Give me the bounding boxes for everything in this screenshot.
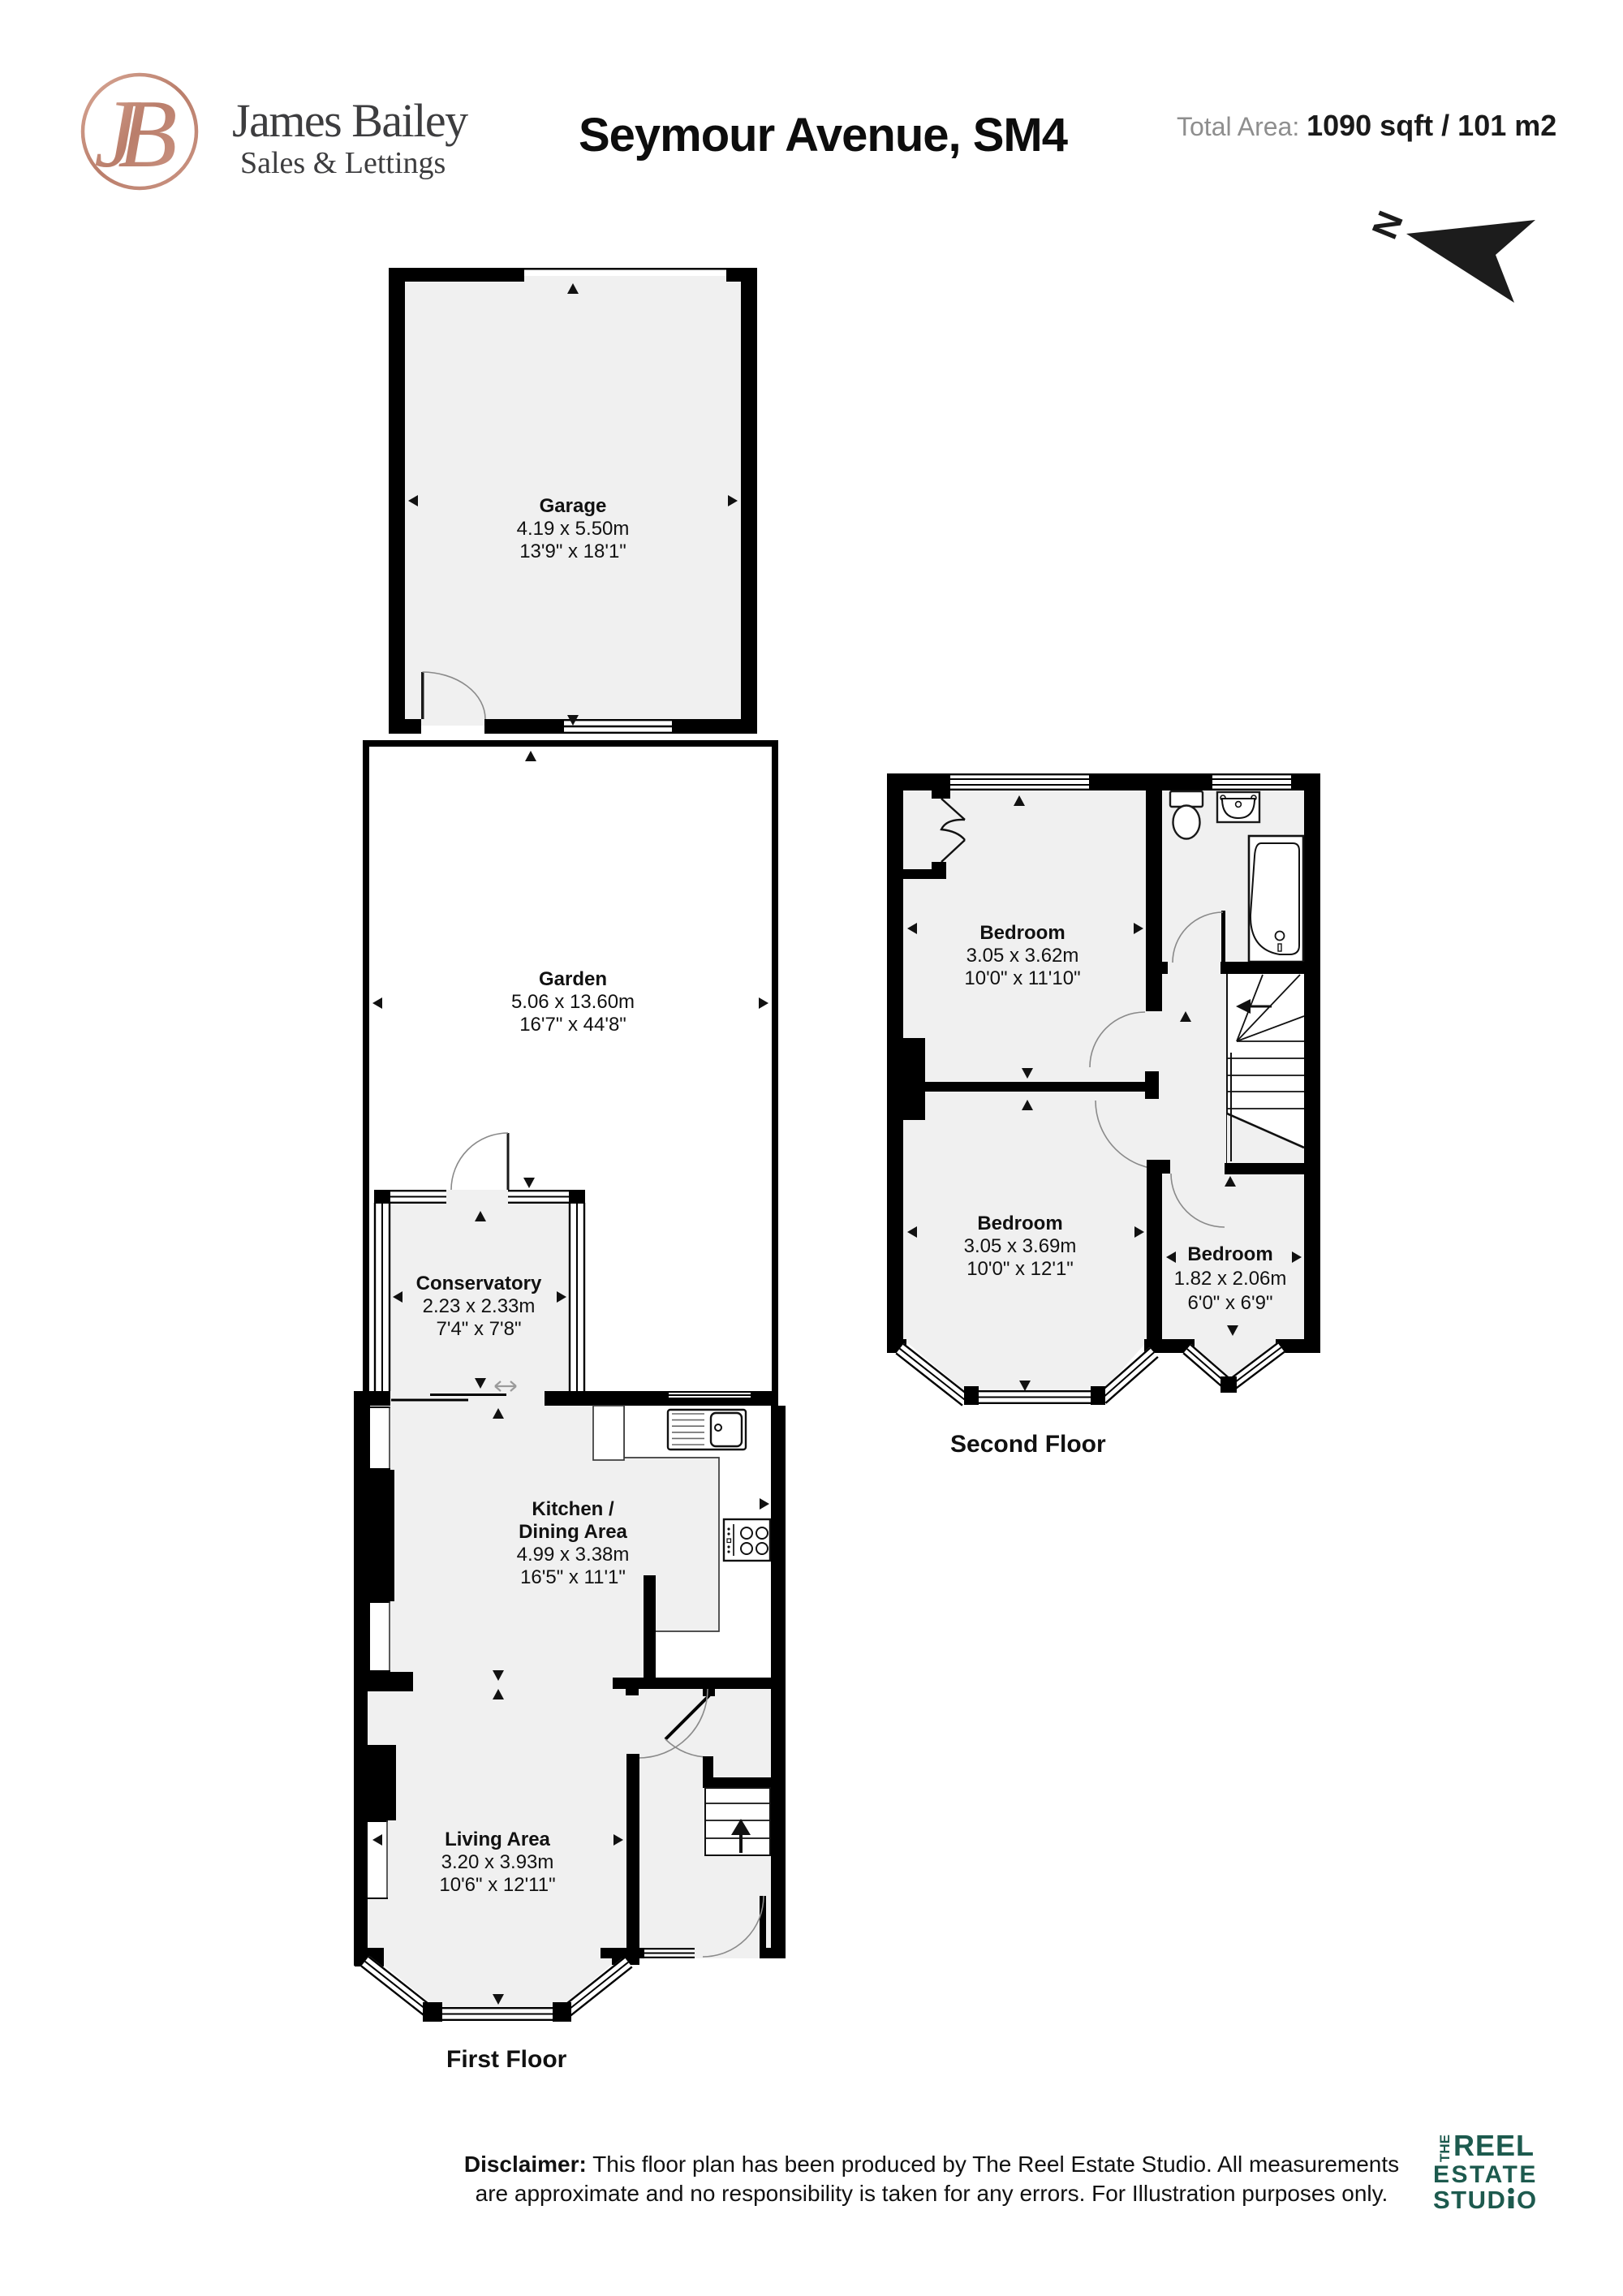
svg-text:10'0" x 12'1": 10'0" x 12'1": [966, 1258, 1074, 1280]
svg-text:ESTATE: ESTATE: [1433, 2161, 1538, 2188]
svg-text:16'5" x 11'1": 16'5" x 11'1": [520, 1566, 626, 1588]
svg-text:are approximate and no respons: are approximate and no responsibility is…: [476, 2181, 1388, 2206]
svg-text:Living Area: Living Area: [445, 1829, 550, 1850]
svg-text:Garage: Garage: [540, 495, 607, 517]
svg-text:REEL: REEL: [1453, 2129, 1535, 2162]
svg-text:Disclaimer: This floor plan ha: Disclaimer: This floor plan has been pro…: [464, 2152, 1399, 2177]
svg-text:1.82 x 2.06m: 1.82 x 2.06m: [1174, 1268, 1287, 1290]
svg-text:Bedroom: Bedroom: [977, 1213, 1062, 1234]
svg-text:Total Area: 1090 sqft / 101 m: Total Area: 1090 sqft / 101 m2: [1177, 109, 1556, 142]
svg-text:3.05 x 3.62m: 3.05 x 3.62m: [966, 945, 1079, 967]
svg-text:O: O: [1517, 2186, 1536, 2214]
svg-text:10'6" x 12'11": 10'6" x 12'11": [439, 1874, 555, 1896]
svg-text:Dining Area: Dining Area: [519, 1521, 627, 1543]
svg-text:Second Floor: Second Floor: [950, 1431, 1106, 1458]
svg-text:2.23 x 2.33m: 2.23 x 2.33m: [423, 1295, 536, 1317]
svg-text:4.19 x 5.50m: 4.19 x 5.50m: [517, 518, 630, 540]
svg-text:First Floor: First Floor: [446, 2046, 567, 2073]
svg-text:Conservatory: Conservatory: [416, 1273, 542, 1294]
svg-text:Bedroom: Bedroom: [1187, 1243, 1272, 1265]
svg-text:Kitchen /: Kitchen /: [532, 1498, 614, 1520]
svg-text:3.20 x 3.93m: 3.20 x 3.93m: [441, 1851, 554, 1873]
svg-text:10'0" x 11'10": 10'0" x 11'10": [964, 967, 1080, 989]
svg-text:13'9" x 18'1": 13'9" x 18'1": [519, 541, 626, 562]
svg-text:Bedroom: Bedroom: [979, 922, 1065, 944]
svg-text:THE: THE: [1437, 2134, 1453, 2162]
svg-text:Garden: Garden: [539, 968, 607, 990]
svg-text:4.99 x 3.38m: 4.99 x 3.38m: [517, 1544, 630, 1566]
svg-text:3.05 x 3.69m: 3.05 x 3.69m: [964, 1235, 1077, 1257]
svg-text:5.06 x 13.60m: 5.06 x 13.60m: [511, 991, 635, 1013]
svg-text:James Bailey: James Bailey: [232, 94, 468, 147]
svg-text:16'7" x 44'8": 16'7" x 44'8": [519, 1014, 626, 1036]
svg-text:7'4" x 7'8": 7'4" x 7'8": [437, 1318, 522, 1340]
svg-text:Sales & Lettings: Sales & Lettings: [240, 146, 446, 180]
svg-text:STUD: STUD: [1433, 2186, 1506, 2214]
svg-text:6'0" x 6'9": 6'0" x 6'9": [1188, 1292, 1273, 1314]
svg-text:Seymour Avenue, SM4: Seymour Avenue, SM4: [579, 109, 1068, 162]
